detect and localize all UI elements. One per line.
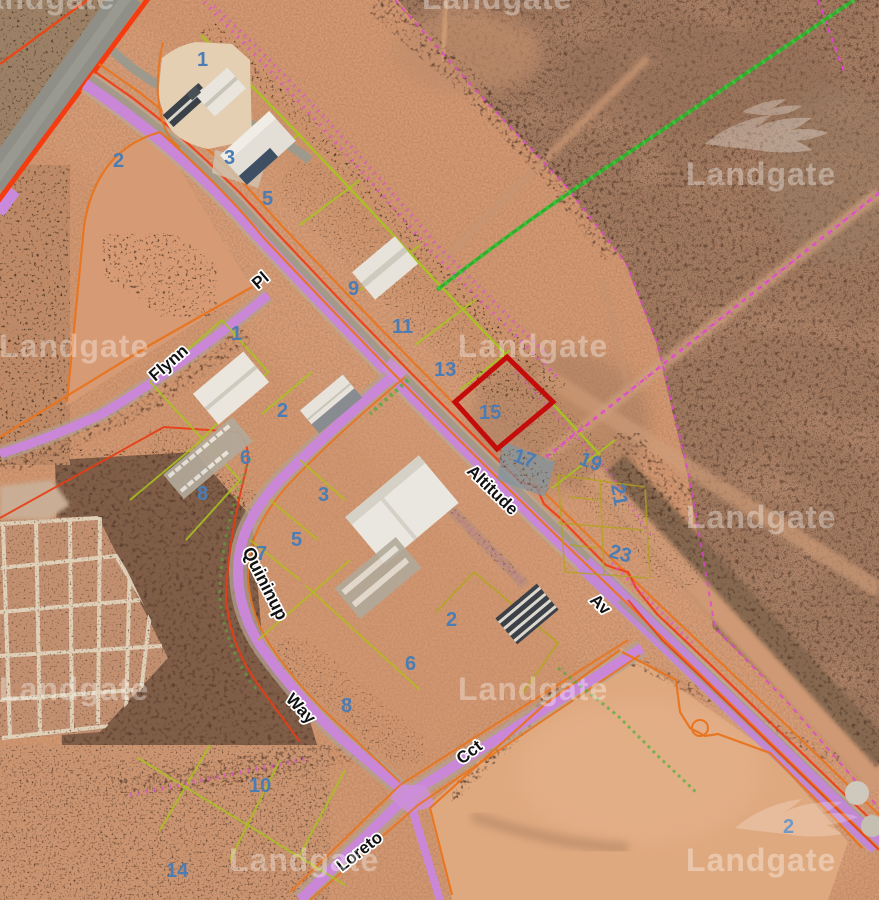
svg-text:Landgate: Landgate xyxy=(686,842,836,878)
svg-text:10: 10 xyxy=(249,775,271,797)
svg-text:8: 8 xyxy=(197,483,208,505)
svg-text:2: 2 xyxy=(277,400,288,422)
svg-text:3: 3 xyxy=(318,484,329,506)
svg-text:Landgate: Landgate xyxy=(0,328,149,364)
svg-text:3: 3 xyxy=(224,147,235,169)
svg-text:1: 1 xyxy=(197,49,208,71)
svg-text:2: 2 xyxy=(113,150,124,172)
svg-text:11: 11 xyxy=(392,316,413,338)
svg-text:9: 9 xyxy=(348,278,359,300)
svg-text:6: 6 xyxy=(240,447,251,469)
svg-text:5: 5 xyxy=(262,188,273,210)
svg-text:Landgate: Landgate xyxy=(422,0,572,16)
svg-text:Landgate: Landgate xyxy=(458,671,608,707)
svg-text:Landgate: Landgate xyxy=(0,0,115,16)
svg-text:Landgate: Landgate xyxy=(686,499,836,535)
svg-text:Landgate: Landgate xyxy=(458,328,608,364)
svg-text:Landgate: Landgate xyxy=(229,842,379,878)
svg-text:7: 7 xyxy=(256,543,267,565)
svg-text:15: 15 xyxy=(479,402,501,424)
svg-text:5: 5 xyxy=(291,529,302,551)
svg-text:21: 21 xyxy=(606,482,632,508)
svg-text:6: 6 xyxy=(405,653,416,675)
svg-text:8: 8 xyxy=(341,695,352,717)
svg-text:Landgate: Landgate xyxy=(0,671,149,707)
svg-text:2: 2 xyxy=(446,609,457,631)
svg-text:Landgate: Landgate xyxy=(686,156,836,192)
svg-text:14: 14 xyxy=(166,860,189,882)
svg-text:13: 13 xyxy=(434,359,456,381)
svg-text:1: 1 xyxy=(231,323,242,345)
